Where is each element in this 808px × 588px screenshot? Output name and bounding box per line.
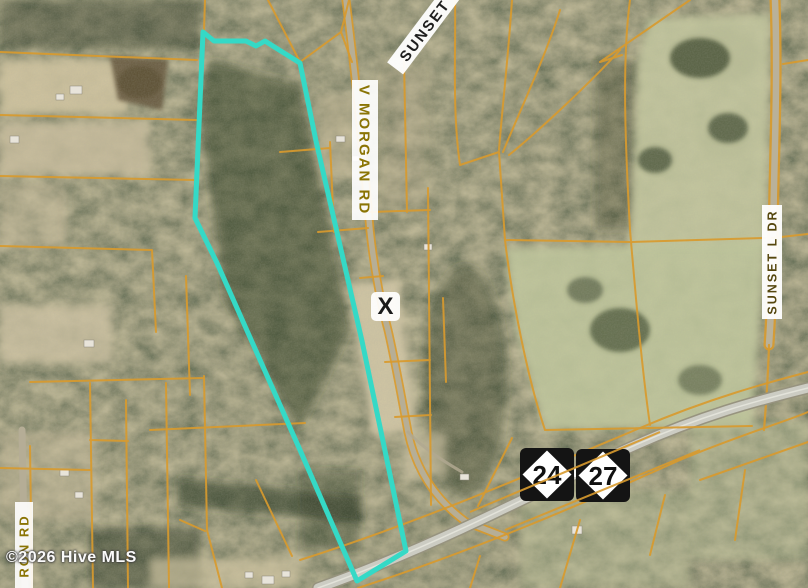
road-label-sunset-l-dr: SUNSET L DR: [762, 205, 782, 319]
road-label-text-sunset-l-dr: SUNSET L DR: [766, 209, 780, 314]
road-label-text-v-morgan: V MORGAN RD: [356, 85, 373, 215]
aerial-imagery[interactable]: X SUNSET V MORGAN RD SUNSET L DR RON RD …: [0, 0, 808, 588]
road-label-ron-rd: RON RD: [15, 502, 33, 588]
x-marker[interactable]: X: [371, 292, 400, 321]
x-marker-label: X: [377, 293, 393, 320]
route-shield-24: 24: [520, 448, 574, 501]
mls-map-view[interactable]: X SUNSET V MORGAN RD SUNSET L DR RON RD …: [0, 0, 808, 588]
road-label-text-ron-rd: RON RD: [17, 514, 32, 577]
road-label-v-morgan: V MORGAN RD: [352, 80, 378, 220]
copyright-text: ©2026 Hive MLS: [6, 549, 137, 566]
